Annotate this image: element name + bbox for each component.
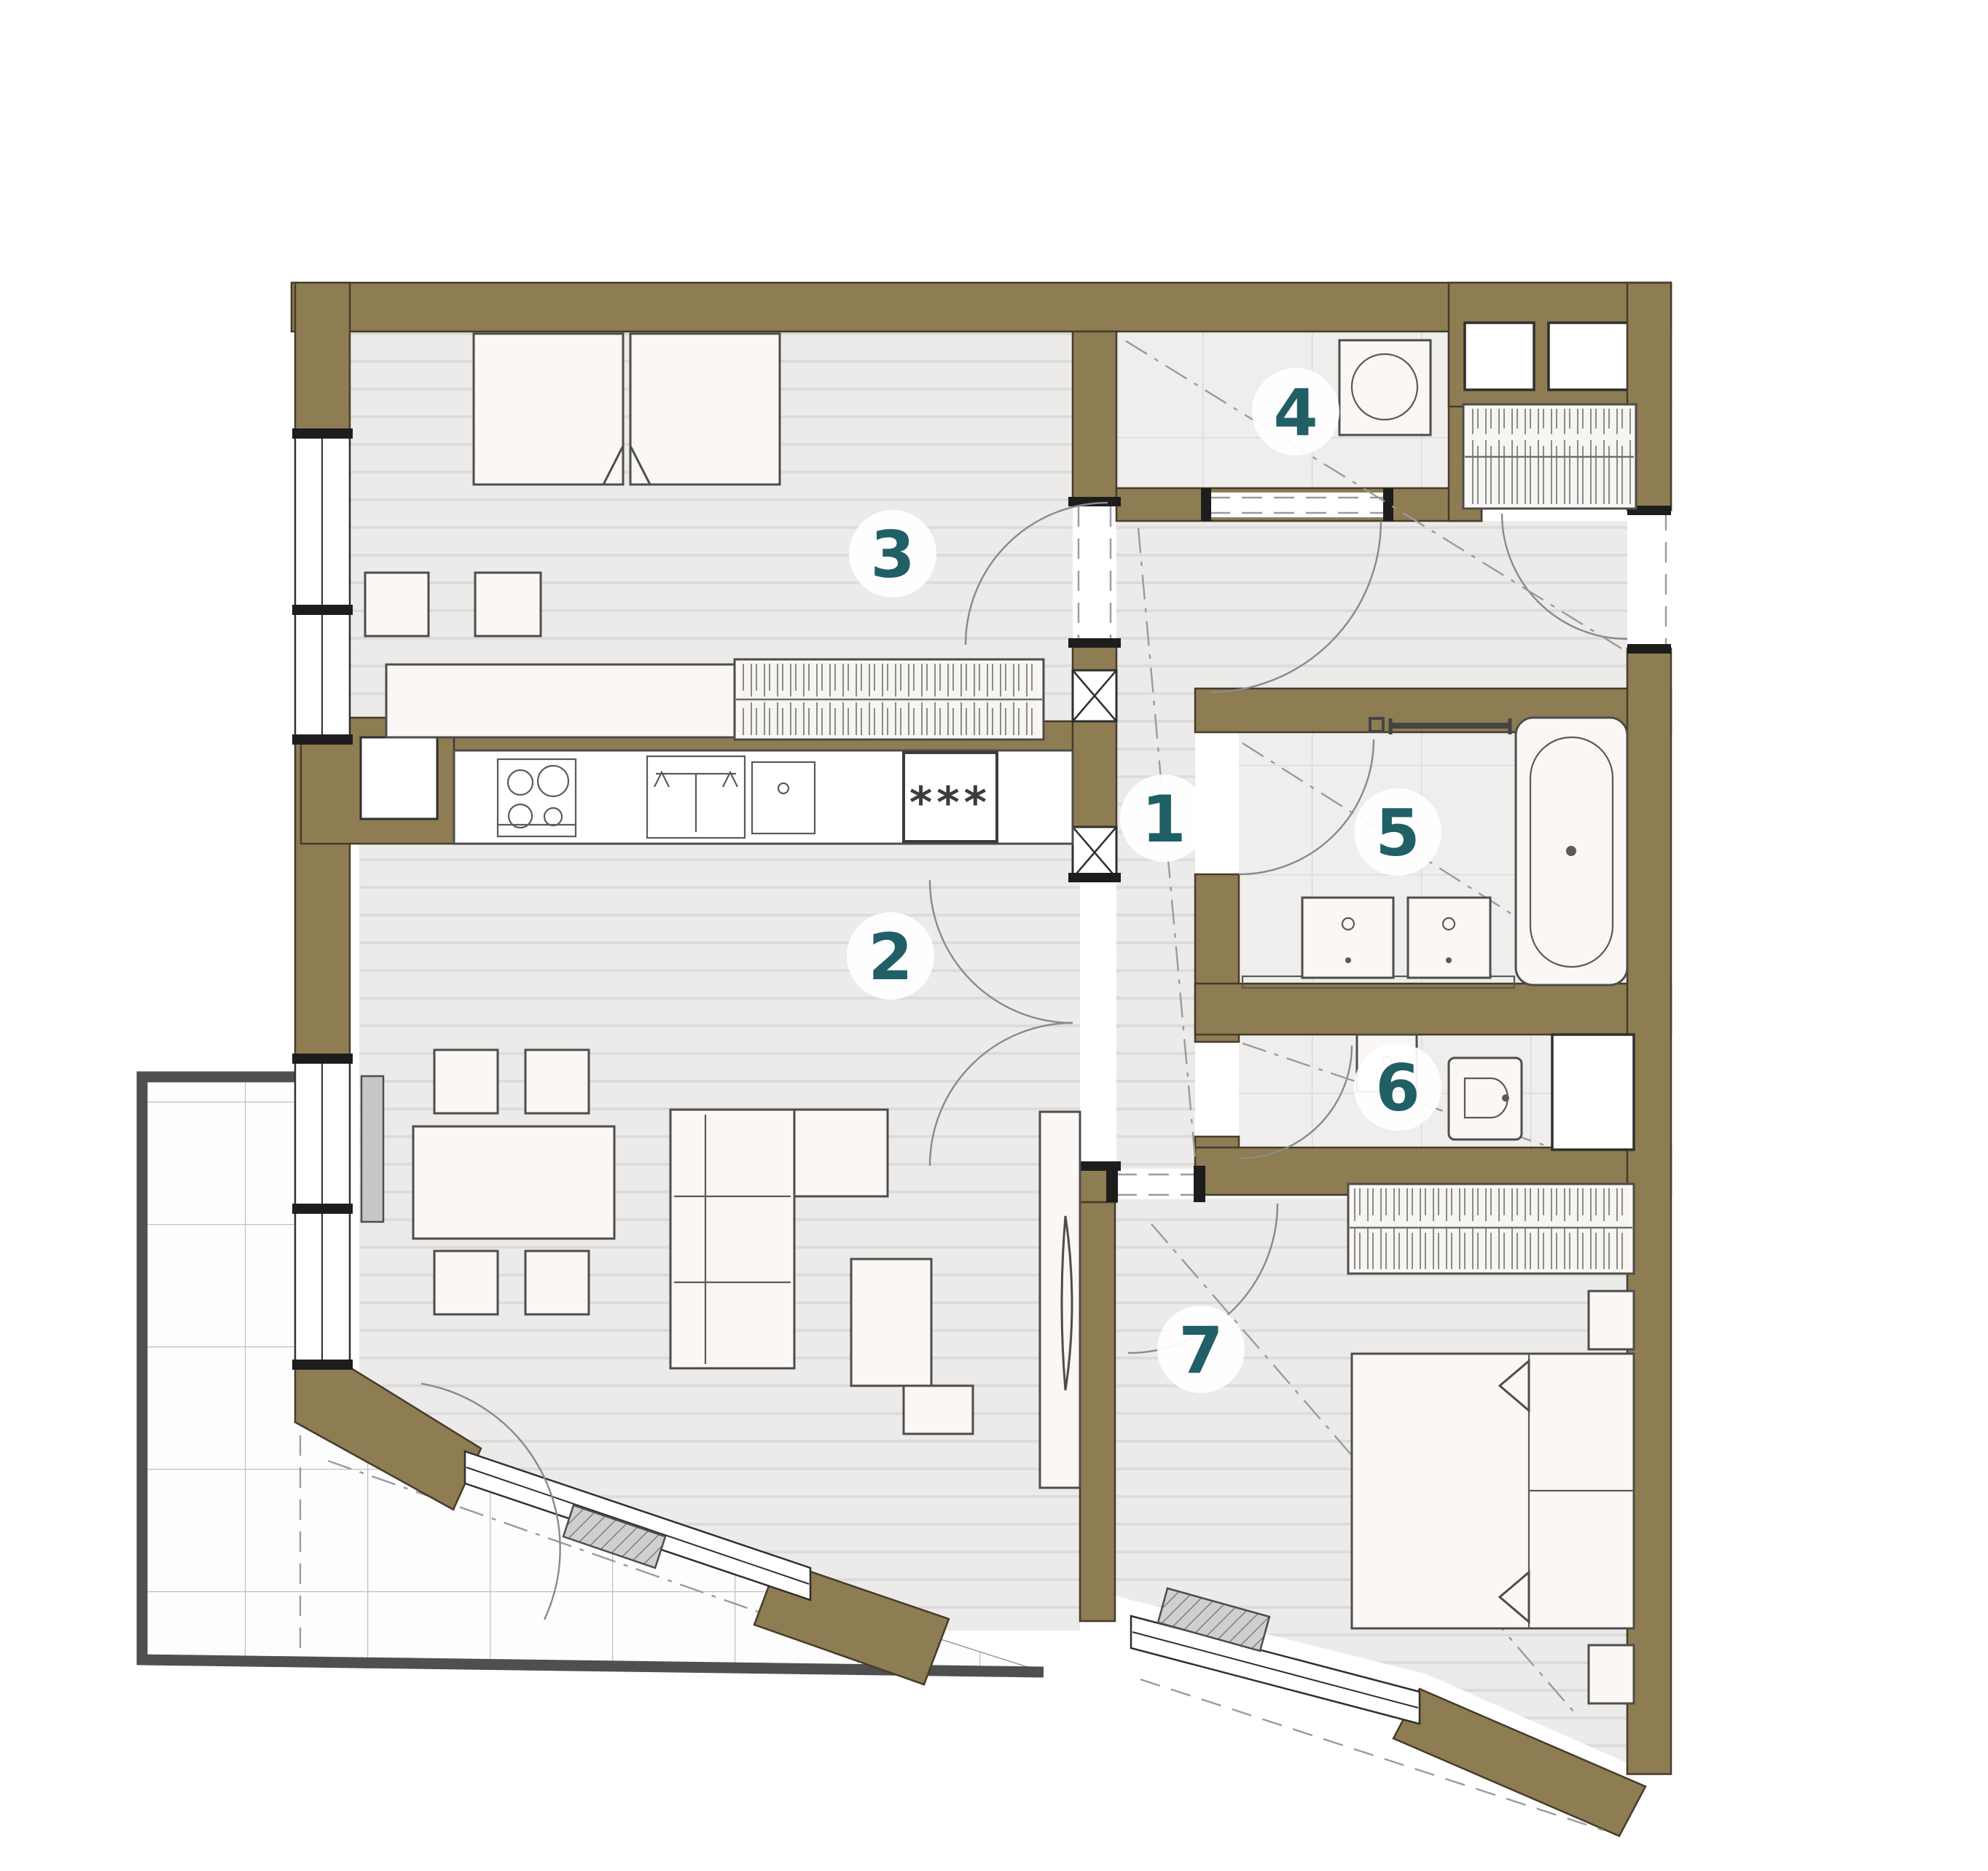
chair-icon	[434, 1251, 498, 1314]
wall-left-upper	[295, 283, 350, 432]
room-badge-3-label: 3	[870, 517, 915, 592]
washing-machine-icon	[1339, 340, 1431, 435]
chair-icon	[525, 1251, 589, 1314]
room3-door-dashes	[1068, 497, 1121, 648]
bed-icon	[630, 334, 780, 485]
niche-topright-1	[1465, 323, 1534, 390]
room-badge-2: 2	[847, 912, 934, 1000]
window-room3-left	[292, 428, 353, 745]
room-badge-6: 6	[1354, 1043, 1441, 1131]
room-badge-5: 5	[1354, 788, 1441, 876]
room4-sliding-door	[1201, 488, 1393, 521]
double-bed-icon	[1352, 1354, 1634, 1628]
hall-room7-opening	[1106, 1166, 1205, 1202]
room-badge-7-label: 7	[1178, 1313, 1223, 1388]
bed-icon	[474, 334, 623, 485]
window-living-balcony	[292, 1054, 353, 1370]
fridge-icon: ***	[904, 753, 997, 842]
coffee-table-icon	[851, 1259, 931, 1386]
room-badge-5-label: 5	[1375, 796, 1420, 871]
room-4-furniture	[1339, 340, 1431, 435]
sink-icon	[1408, 898, 1490, 978]
nightstand-icon	[1589, 1645, 1634, 1703]
side-table-icon	[904, 1386, 973, 1434]
room-badge-2-label: 2	[868, 919, 912, 995]
nightstand-icon	[1589, 1291, 1634, 1349]
nightstand-icon	[365, 573, 428, 636]
wall-hall-west-a	[1073, 332, 1116, 503]
nightstand-icon	[475, 573, 541, 636]
entry-door-opening	[1627, 506, 1671, 654]
chair-icon	[434, 1050, 498, 1113]
toilet-icon	[1449, 1058, 1522, 1140]
room-badge-4-label: 4	[1273, 375, 1318, 450]
room-badge-6-label: 6	[1375, 1051, 1420, 1126]
kitchen-furniture: ***	[454, 750, 1073, 844]
tv-board-icon	[1040, 1112, 1080, 1488]
floor-plan: ***	[0, 0, 1988, 1871]
wardrobe-icon	[735, 659, 1044, 740]
bathtub-icon	[1516, 718, 1627, 985]
room-badge-4: 4	[1252, 368, 1339, 455]
shaft-x-2	[1073, 827, 1116, 878]
room-badge-1-label: 1	[1141, 782, 1186, 857]
balcony-sideboard-icon	[361, 1076, 383, 1222]
entry-closet-icon	[1463, 404, 1636, 509]
room-badge-7: 7	[1157, 1306, 1245, 1393]
wall-bath-wc-divider	[1195, 984, 1671, 1035]
wardrobe-icon	[1348, 1184, 1634, 1274]
chair-icon	[525, 1050, 589, 1113]
kitchen-block-shaft	[361, 737, 437, 819]
wall-room7-left	[1080, 1202, 1115, 1621]
shaft-x-1	[1073, 670, 1116, 721]
sideboard-icon	[386, 664, 735, 737]
wc-niche	[1552, 1035, 1634, 1150]
sink-icon	[1302, 898, 1393, 978]
freezer-stars-label: ***	[909, 777, 991, 828]
dining-table-icon	[413, 1126, 614, 1239]
room-badge-1: 1	[1120, 774, 1208, 862]
room-badge-3: 3	[849, 510, 936, 597]
niche-topright-2	[1549, 323, 1631, 390]
